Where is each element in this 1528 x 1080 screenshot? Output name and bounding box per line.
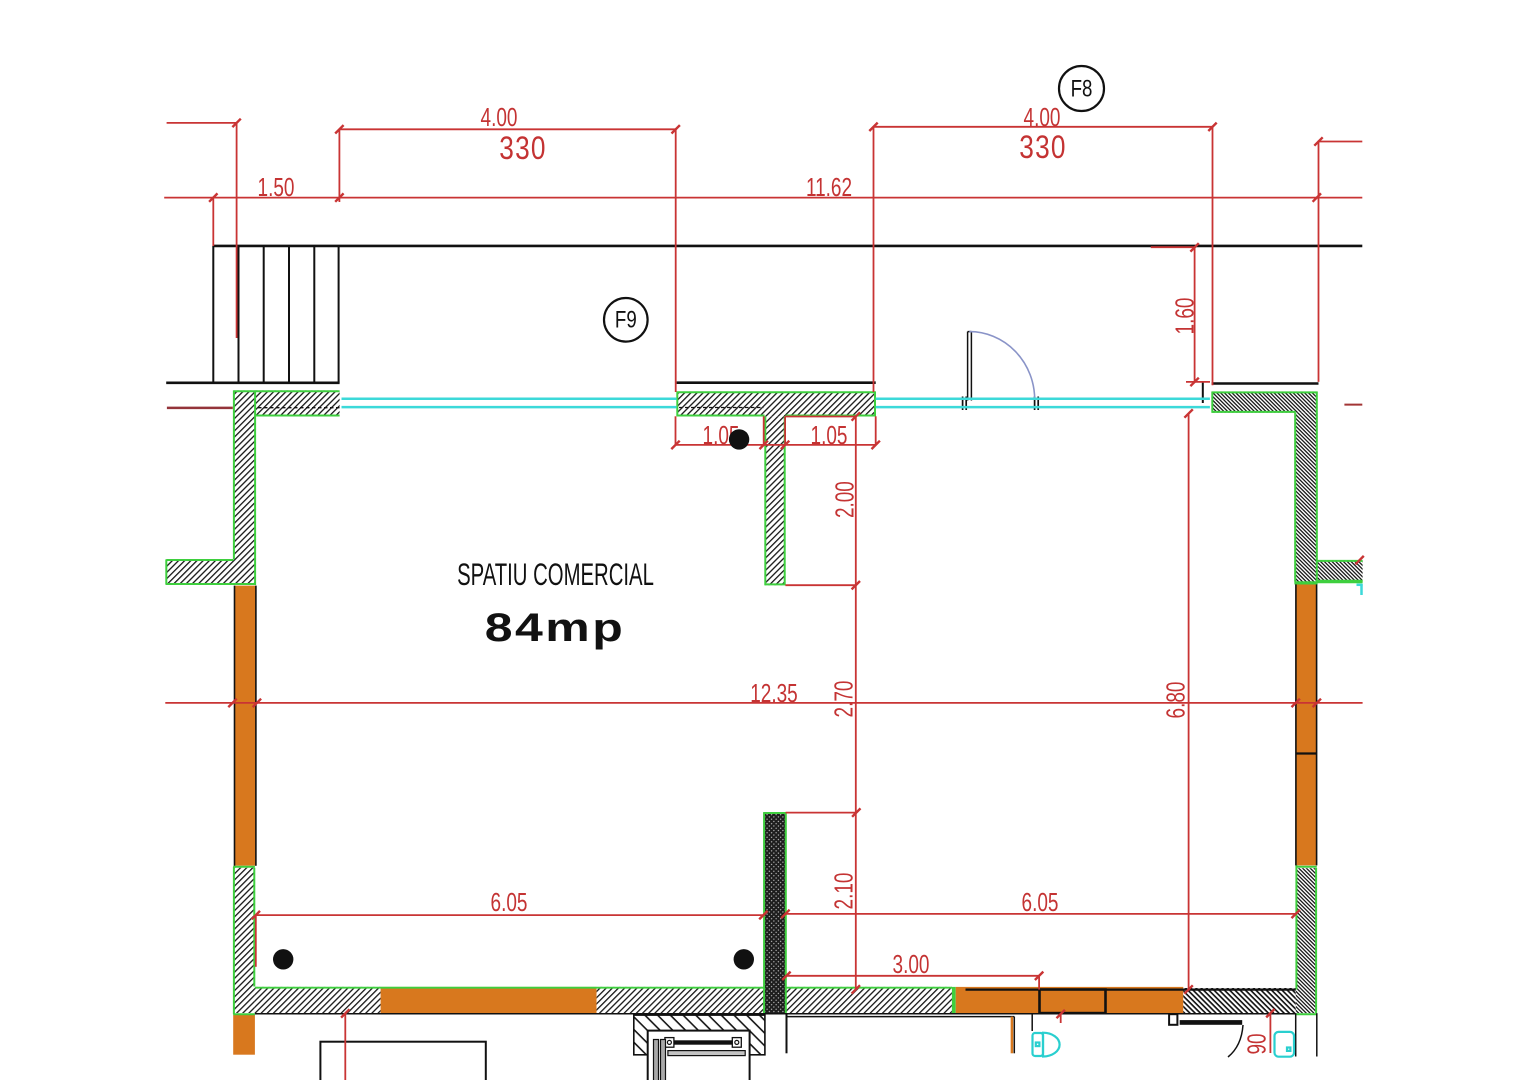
svg-text:12.35: 12.35 xyxy=(750,678,797,708)
svg-text:84mp: 84mp xyxy=(485,605,626,650)
svg-text:1.60: 1.60 xyxy=(1170,298,1200,335)
svg-text:SPATIU COMERCIAL: SPATIU COMERCIAL xyxy=(457,556,654,592)
svg-text:F9: F9 xyxy=(615,306,637,333)
svg-text:1.50: 1.50 xyxy=(258,172,295,202)
svg-text:330: 330 xyxy=(499,132,546,167)
svg-text:F8: F8 xyxy=(1071,75,1093,102)
svg-text:6.05: 6.05 xyxy=(491,887,528,917)
svg-text:2.70: 2.70 xyxy=(829,681,859,718)
svg-text:330: 330 xyxy=(1019,131,1066,166)
svg-text:11.62: 11.62 xyxy=(806,172,852,202)
svg-text:4.00: 4.00 xyxy=(481,102,518,132)
svg-text:2.00: 2.00 xyxy=(830,481,860,518)
svg-text:6.05: 6.05 xyxy=(1022,887,1059,917)
svg-text:2.10: 2.10 xyxy=(829,873,859,910)
svg-text:90: 90 xyxy=(1242,1033,1272,1054)
svg-text:6.80: 6.80 xyxy=(1161,682,1191,719)
svg-text:3.00: 3.00 xyxy=(893,949,930,979)
svg-text:1.05: 1.05 xyxy=(811,420,848,450)
svg-text:4.00: 4.00 xyxy=(1024,102,1061,132)
